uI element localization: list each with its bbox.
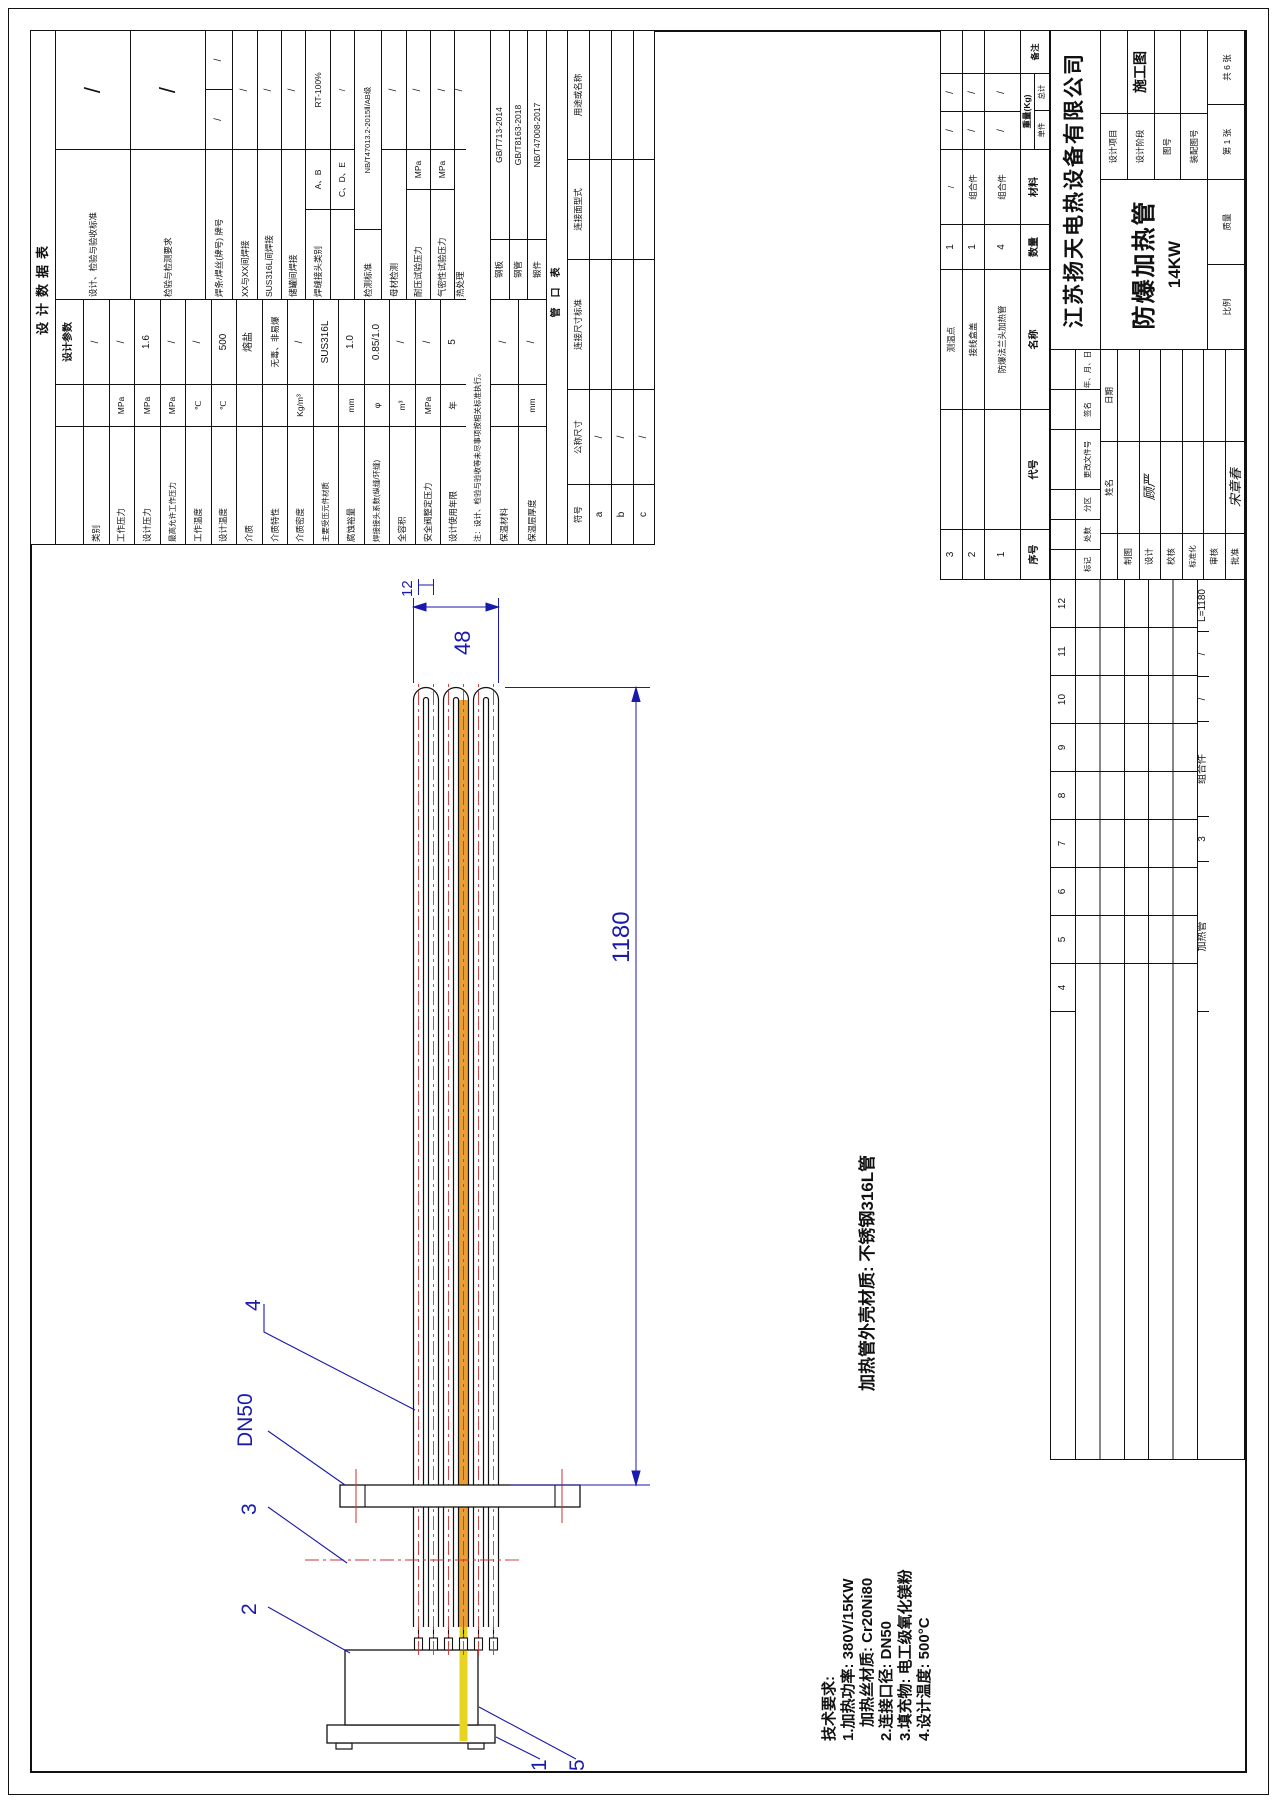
- sig-name: [1161, 441, 1182, 533]
- nozzle-size: /: [634, 389, 655, 484]
- nozzle-table-title: 管口表: [547, 31, 567, 544]
- strip-number: 11: [1051, 627, 1075, 675]
- tech-line: 加热丝材质: Cr20Ni80: [858, 1381, 877, 1741]
- nozzle-header: 符号: [568, 484, 589, 544]
- junction-box-base-plate: [327, 1725, 495, 1743]
- dimension-12: [419, 579, 434, 595]
- tech-line: 1.加热功率: 380V/15KW: [839, 1381, 858, 1741]
- callout-2: 2: [238, 1603, 261, 1615]
- joint-label: 焊缝接头类别: [306, 209, 329, 299]
- param-unit: MPa: [161, 384, 186, 426]
- param-label: 全容积: [390, 426, 415, 544]
- leak-value: /: [431, 31, 454, 149]
- product-power: 14KW: [1165, 241, 1185, 288]
- sig-name: [1204, 441, 1225, 533]
- param-value: SUS316L: [314, 300, 339, 384]
- bom-header-weight: 重量(Kg): [1021, 74, 1035, 149]
- title-block: 标记 处数 分区 更改文件号 签名 年、月、日 江苏扬天电热设备有限公司 姓名 …: [1050, 30, 1245, 580]
- param-unit: φ: [365, 384, 390, 426]
- param-value: 1.6: [135, 300, 160, 384]
- field-label: 设计阶段: [1128, 113, 1154, 179]
- bom-header-material: 材料: [1021, 149, 1049, 224]
- weld-label: XX与XX间焊接: [233, 149, 256, 299]
- strip-number: 6: [1051, 867, 1075, 915]
- cad-sheet: 1180 48 12 4 DN50 3 2 1 5 技术要求:: [0, 0, 1277, 1803]
- bom-header-weight-unit: 单件: [1035, 110, 1049, 149]
- bom-remark: [985, 31, 1020, 73]
- param-value: 熔盐: [237, 300, 262, 384]
- leak-label: 气密性试验压力: [431, 189, 454, 299]
- param-value: /: [186, 300, 211, 384]
- leak-unit: MPa: [431, 149, 454, 189]
- strip-item-w2: /: [1198, 631, 1209, 676]
- strip-number: 4: [1051, 963, 1075, 1011]
- nozzle-symbol: a: [590, 484, 611, 544]
- rod-label: 焊条/焊丝(牌号) 牌号: [206, 149, 232, 299]
- bom-weight-total: /: [985, 73, 1020, 111]
- bom-header-weight-total: 总计: [1035, 74, 1049, 110]
- param-unit: mm: [519, 384, 546, 426]
- param-unit: [491, 384, 518, 426]
- design-data-table: 设计数据表 设计参数 类别/ 工作压力MPa/ 设计压力MPa1.6 最高允许工…: [30, 30, 655, 545]
- param-value: 0.85/1.0: [365, 300, 390, 384]
- tube-centerlines: [419, 681, 494, 1655]
- rev-header: 处数: [1076, 519, 1100, 549]
- shell-material-note: 加热管外壳材质: 不锈钢316L管: [858, 1155, 877, 1391]
- param-label: 保温材料: [491, 426, 518, 544]
- strip-number: 8: [1051, 771, 1075, 819]
- std-material: 钢管: [510, 239, 528, 299]
- param-value: /: [519, 300, 546, 384]
- param-col-header: 设计参数: [56, 300, 83, 384]
- param-unit: ℃: [186, 384, 211, 426]
- nozzle-size: /: [612, 389, 633, 484]
- callout-5: 5: [566, 1759, 589, 1771]
- junction-box: [345, 1650, 478, 1725]
- param-label: 介质密度: [288, 426, 313, 544]
- param-label: 设计温度: [212, 426, 237, 544]
- bom-code: [985, 409, 1020, 529]
- heat-label: 热处理: [455, 149, 466, 299]
- table-note: 注：设计、检验与验收等未尽事项按相关标准执行。: [466, 31, 490, 544]
- scale-label: 比例: [1208, 264, 1246, 349]
- bom-header-name: 名称: [1021, 269, 1049, 409]
- strip-number: 7: [1051, 819, 1075, 867]
- bom-remark: [941, 31, 962, 73]
- param-unit: m³: [390, 384, 415, 426]
- bom-qty: 1: [963, 224, 984, 269]
- strip-item-qty: 3: [1198, 816, 1209, 861]
- joint-value: RT-100%: [306, 31, 329, 149]
- tech-line: 技术要求:: [820, 1381, 839, 1741]
- detstd-value: NB/T47013.2-2015Ⅱ/AB级: [355, 31, 381, 229]
- bom-no: 3: [941, 529, 962, 579]
- sheets-total: 共 6 张: [1208, 31, 1246, 104]
- weld-value: /: [233, 31, 256, 149]
- param-unit: Kg/m³: [288, 384, 313, 426]
- param-unit: [314, 384, 339, 426]
- param-label: 腐蚀裕量: [339, 426, 364, 544]
- sig-name-header: 姓名: [1101, 441, 1117, 533]
- rev-header: 年、月、日: [1076, 350, 1100, 389]
- bom-material: 组合件: [985, 149, 1020, 224]
- bom-weight-total: /: [941, 73, 962, 111]
- press-label: 耐压试验压力: [407, 189, 430, 299]
- base-label: 母材检测: [382, 149, 405, 299]
- strip-number: 5: [1051, 915, 1075, 963]
- rev-header: 分区: [1076, 489, 1100, 519]
- detstd-label: 检测标准: [355, 229, 381, 299]
- rev-header: 标记: [1076, 549, 1100, 579]
- flange-size-label: DN50: [234, 1393, 257, 1447]
- sig-name: 宋章春: [1226, 441, 1247, 533]
- bom-remark: [963, 31, 984, 73]
- sig-name: 顾严: [1140, 441, 1161, 533]
- nozzle-symbol: c: [634, 484, 655, 544]
- param-unit: 年: [441, 384, 466, 426]
- dim-48-text: 48: [450, 631, 475, 655]
- param-label: 工作温度: [186, 426, 211, 544]
- param-value: /: [161, 300, 186, 384]
- strip-empty-rows: [1076, 580, 1198, 1459]
- stage-value: 施工图: [1128, 31, 1154, 113]
- sheet-number: 第 1 张: [1208, 104, 1246, 179]
- joint-value: /: [331, 31, 354, 149]
- field-label: 设计项目: [1101, 113, 1127, 179]
- bom-name: 防爆法兰头加热管: [985, 269, 1020, 409]
- bom-no: 2: [963, 529, 984, 579]
- mount-foot: [336, 1743, 352, 1749]
- weld-value: /: [258, 31, 281, 149]
- std-code: GB/T8163-2018: [510, 31, 528, 239]
- param-unit: [84, 384, 109, 426]
- design-table-title: 设计数据表: [31, 31, 55, 544]
- bom-qty: 4: [985, 224, 1020, 269]
- bom-weight-total: /: [963, 73, 984, 111]
- param-value: 5: [441, 300, 466, 384]
- sig-role: 审核: [1204, 533, 1225, 579]
- callout-4: 4: [242, 1299, 265, 1311]
- strip-item-material: 组合件: [1198, 721, 1209, 816]
- param-label: 保温层厚度: [519, 426, 546, 544]
- u-bends: [414, 688, 499, 701]
- bom-code: [963, 409, 984, 529]
- param-value: 无毒、非易爆: [263, 300, 288, 384]
- param-label: 主要受压元件材质: [314, 426, 339, 544]
- joint-class: C、D、E: [331, 149, 354, 209]
- bom-header-no: 序号: [1021, 529, 1049, 579]
- insp-value: /: [56, 31, 130, 149]
- rod-value: /: [206, 89, 232, 149]
- bom-qty: 1: [941, 224, 962, 269]
- strip-number: 9: [1051, 723, 1075, 771]
- param-value: /: [110, 300, 135, 384]
- strip-item-remark: L=1180: [1198, 580, 1209, 631]
- param-value: 500: [212, 300, 237, 384]
- bom-header-code: 代号: [1021, 409, 1049, 529]
- bom-material: 组合件: [963, 149, 984, 224]
- param-label: 类别: [84, 426, 109, 544]
- rev-header: 签名: [1076, 389, 1100, 429]
- param-label: 安全阀整定压力: [416, 426, 441, 544]
- sig-name: [1118, 441, 1139, 533]
- field-label: 装配图号: [1181, 113, 1207, 179]
- insp-label: 设计、检验与验收标准: [56, 149, 130, 299]
- nozzle-header: 用途或名称: [568, 31, 589, 159]
- bom-weight-unit: /: [963, 111, 984, 149]
- rev-header: 更改文件号: [1076, 429, 1100, 489]
- sig-role: 制图: [1118, 533, 1139, 579]
- nozzle-header: 连接面型式: [568, 159, 589, 259]
- std-code: GB/T713-2014: [491, 31, 509, 239]
- param-unit: [237, 384, 262, 426]
- strip-item-w1: /: [1198, 676, 1209, 721]
- param-label: 介质特性: [263, 426, 288, 544]
- param-value: /: [84, 300, 109, 384]
- drawing-sheet-page: 1180 48 12 4 DN50 3 2 1 5 技术要求:: [0, 0, 1277, 1803]
- bom-weight-unit: /: [941, 111, 962, 149]
- param-value: /: [390, 300, 415, 384]
- bom-name: 测温点: [941, 269, 962, 409]
- flange-dn50: [340, 1485, 580, 1507]
- param-value: 1.0: [339, 300, 364, 384]
- param-label: 焊接接头系数(纵缝/环缝): [365, 426, 390, 544]
- sig-role: 设计: [1140, 533, 1161, 579]
- param-label: 最高允许工作压力: [161, 426, 186, 544]
- terminal-studs: [415, 1627, 498, 1650]
- insp-label: 检验与检测要求: [131, 149, 205, 299]
- nozzle-symbol: b: [612, 484, 633, 544]
- mass-label: 质量: [1208, 180, 1246, 264]
- tech-line: 2.连接口径: DN50: [877, 1381, 896, 1741]
- field-label: 图号: [1155, 113, 1181, 179]
- bom-material: /: [941, 149, 962, 224]
- joint-class: A、B: [306, 149, 329, 209]
- sig-date-header: 日期: [1101, 350, 1117, 441]
- mount-foot: [468, 1743, 484, 1749]
- insp-value: /: [131, 31, 205, 149]
- bom-code: [941, 409, 962, 529]
- std-code: NB/T47008-2017: [528, 31, 546, 239]
- press-value: /: [407, 31, 430, 149]
- rod-value: /: [206, 31, 232, 89]
- nozzle-header: 连接尺寸标准: [568, 259, 589, 389]
- std-material: 钢板: [491, 239, 509, 299]
- param-label: 设计使用年限: [441, 426, 466, 544]
- bom-header-qty: 数量: [1021, 224, 1049, 269]
- strip-item-name: 加热管: [1198, 861, 1209, 1011]
- param-value: /: [416, 300, 441, 384]
- param-unit: ℃: [212, 384, 237, 426]
- dim-12-text: 12: [399, 580, 416, 597]
- bom-name: 接线盒盖: [963, 269, 984, 409]
- bom-header-remark: 备注: [1021, 31, 1049, 73]
- strip-number: 12: [1051, 580, 1075, 627]
- base-value: /: [382, 31, 405, 149]
- param-unit: [263, 384, 288, 426]
- bom-no: 1: [985, 529, 1020, 579]
- param-unit: mm: [339, 384, 364, 426]
- dimension-1180: [505, 688, 650, 1486]
- bom-table: 3 测温点 1 / / / 2 接线盒盖 1 组合件 / / 1 防爆法兰头加热…: [940, 30, 1050, 580]
- param-unit: MPa: [110, 384, 135, 426]
- weld-label: SUS316L间焊接: [258, 149, 281, 299]
- strip-number: 10: [1051, 675, 1075, 723]
- callout-1: 1: [528, 1759, 551, 1771]
- nozzle-header: 公称尺寸: [568, 389, 589, 484]
- param-unit: MPa: [416, 384, 441, 426]
- param-value: /: [288, 300, 313, 384]
- weld-label: 储罐间焊接: [282, 149, 305, 299]
- technical-requirements: 技术要求: 1.加热功率: 380V/15KW 加热丝材质: Cr20Ni80 …: [820, 1381, 934, 1741]
- heat-value: /: [455, 31, 466, 149]
- param-label: 工作压力: [110, 426, 135, 544]
- sig-role: 校核: [1161, 533, 1182, 579]
- sig-role: 标准化: [1183, 533, 1204, 579]
- sig-name: [1183, 441, 1204, 533]
- param-value: /: [491, 300, 518, 384]
- bom-weight-unit: /: [985, 111, 1020, 149]
- bom-extension-strip: 4 5 6 7 8 9 10 11 12 加热管 3 组合件 / / L=118…: [1050, 580, 1245, 1460]
- sig-role: 批准: [1226, 533, 1247, 579]
- param-label: 设计压力: [135, 426, 160, 544]
- param-unit: MPa: [135, 384, 160, 426]
- tech-line: 4.设计温度: 500°C: [915, 1381, 934, 1741]
- nozzle-size: /: [590, 389, 611, 484]
- std-material: 锻件: [528, 239, 546, 299]
- param-label: 介质: [237, 426, 262, 544]
- tech-line: 3.填充物: 电工级氧化镁粉: [896, 1381, 915, 1741]
- company-name: 江苏扬天电热设备有限公司: [1051, 31, 1100, 349]
- press-unit: MPa: [407, 149, 430, 189]
- callout-3: 3: [238, 1503, 261, 1515]
- dim-1180-text: 1180: [608, 911, 635, 963]
- weld-value: /: [282, 31, 305, 149]
- product-title: 防爆加热管: [1124, 200, 1159, 330]
